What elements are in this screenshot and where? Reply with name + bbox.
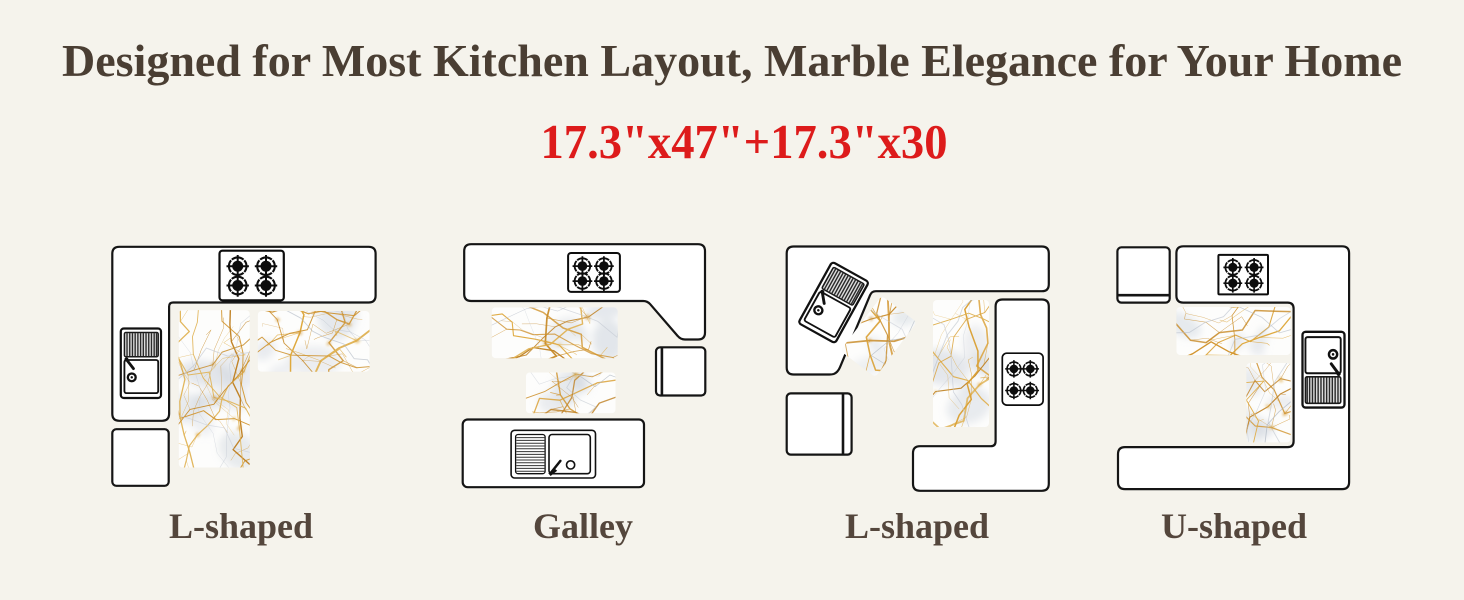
svg-text:17.3"x47"+17.3"x30: 17.3"x47"+17.3"x30 [541, 114, 948, 169]
svg-text:Galley: Galley [533, 506, 633, 546]
svg-text:Designed for Most Kitchen Layo: Designed for Most Kitchen Layout, Marble… [62, 35, 1402, 86]
svg-text:L-shaped: L-shaped [169, 506, 313, 546]
svg-text:L-shaped: L-shaped [845, 506, 989, 546]
svg-text:U-shaped: U-shaped [1161, 506, 1307, 546]
